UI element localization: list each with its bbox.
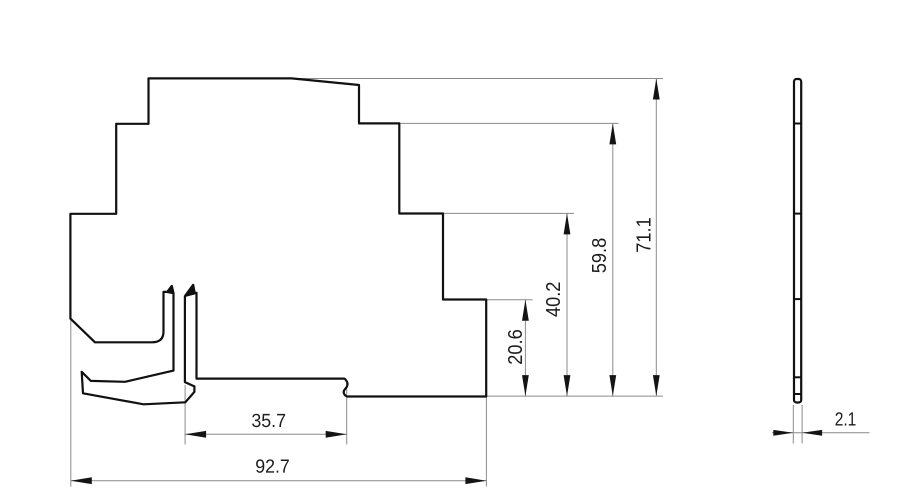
- svg-text:92.7: 92.7: [255, 457, 290, 478]
- svg-text:71.1: 71.1: [633, 217, 655, 253]
- svg-text:20.6: 20.6: [505, 329, 527, 365]
- svg-text:40.2: 40.2: [543, 282, 565, 318]
- svg-text:35.7: 35.7: [251, 411, 286, 432]
- svg-text:2.1: 2.1: [835, 409, 857, 430]
- svg-text:59.8: 59.8: [589, 238, 611, 274]
